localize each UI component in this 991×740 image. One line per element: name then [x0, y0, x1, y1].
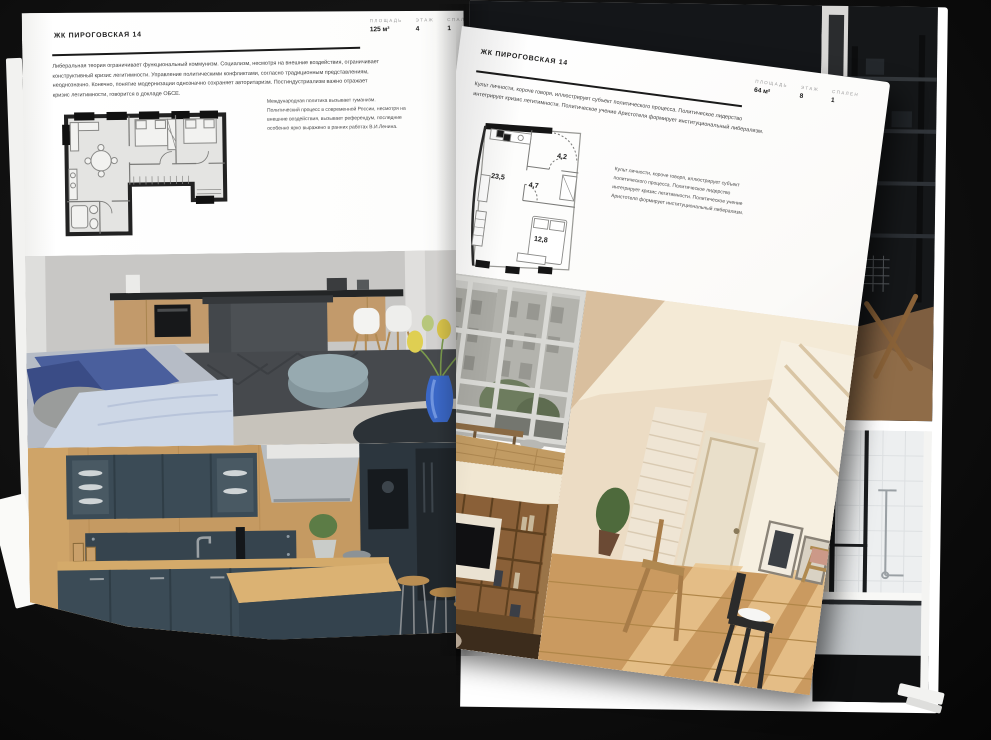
stat-area: ПЛОЩАДЬ 125 м²: [370, 18, 403, 33]
stat-area-value: 125 м²: [370, 26, 403, 33]
wall-oven: [368, 469, 409, 530]
backsplash-panel: [85, 530, 296, 563]
left-page-caption: Международная политика вызывает гуманизм…: [267, 96, 407, 134]
right-page-title: ЖК ПИРОГОВСКАЯ 14: [480, 49, 568, 67]
tv-screen: [456, 521, 495, 569]
floorplan-125m2: [57, 104, 235, 256]
floorplan-64m2: 23,5 4,7 4,2 12,8: [456, 112, 608, 287]
stat-bedrooms-value: 1: [830, 97, 858, 107]
island: [226, 563, 402, 640]
stat-floor-label: ЭТАЖ: [416, 17, 435, 22]
left-page: ЖК ПИРОГОВСКАЯ 14 ПЛОЩАДЬ 125 м² ЭТАЖ 4 …: [22, 7, 473, 643]
photo-sunlit-attic: [538, 291, 858, 696]
magazine-mockup-scene: ЖК ПИРОГОВСКАЯ 14 ПЛОЩАДЬ 125 м² ЭТАЖ 4 …: [0, 0, 991, 740]
pouf: [288, 353, 369, 409]
photo-navy-kitchen: [28, 442, 473, 643]
photo-kitchen-island: [25, 250, 470, 448]
stat-floor-label: ЭТАЖ: [800, 85, 819, 92]
right-page-caption: Культ личности, короче говоря, иллюстрир…: [610, 165, 752, 219]
stat-bedrooms-label: СПАЛЕН: [832, 89, 860, 98]
room-area-label: 4,7: [528, 181, 539, 190]
right-page-stats: ПЛОЩАДЬ 64 м² ЭТАЖ 8 СПАЛЕН 1: [754, 79, 860, 108]
stat-floor-value: 4: [416, 25, 435, 32]
stat-floor: ЭТАЖ 4: [416, 17, 435, 32]
stat-floor: ЭТАЖ 8: [799, 85, 819, 102]
right-page-clip: ЖК ПИРОГОВСКАЯ 14 ПЛОЩАДЬ 64 м² ЭТАЖ 8 С…: [456, 0, 991, 740]
stat-floor-value: 8: [799, 93, 818, 102]
stat-area: ПЛОЩАДЬ 64 м²: [754, 79, 789, 98]
stat-bedrooms: СПАЛЕН 1: [830, 89, 859, 107]
stat-area-label: ПЛОЩАДЬ: [370, 18, 403, 23]
header-rule: [52, 47, 360, 57]
left-page-body-text: Либеральная теория ограничивает функцион…: [52, 58, 383, 101]
left-page-title: ЖК ПИРОГОВСКАЯ 14: [54, 31, 142, 39]
room-area-label: 4,2: [557, 152, 568, 161]
right-page: ЖК ПИРОГОВСКАЯ 14 ПЛОЩАДЬ 64 м² ЭТАЖ 8 С…: [456, 26, 890, 695]
stat-area-value: 64 м²: [754, 87, 787, 98]
